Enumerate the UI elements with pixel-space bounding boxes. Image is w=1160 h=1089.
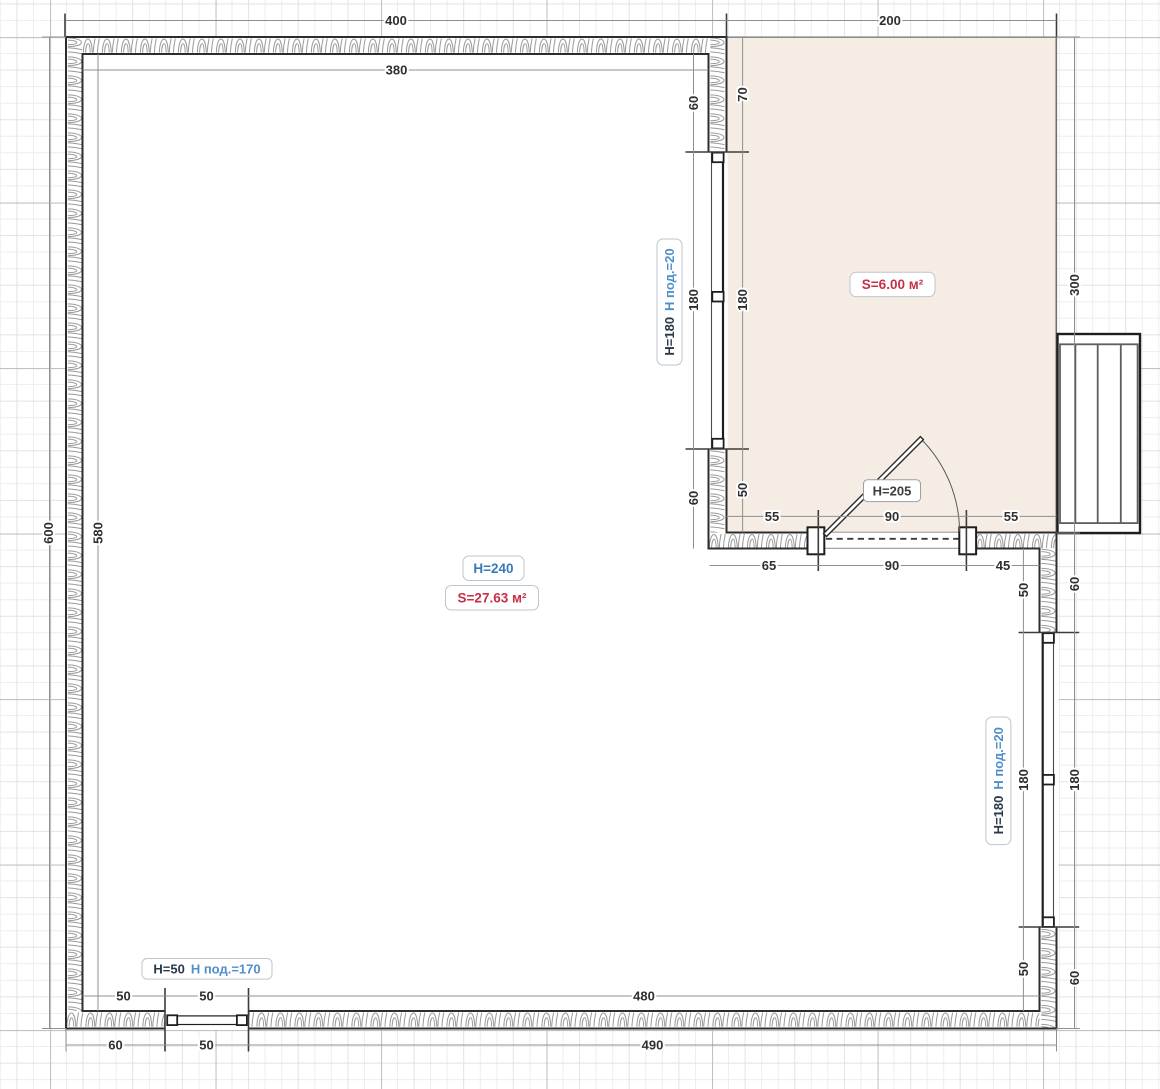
svg-text:50: 50 <box>1016 583 1031 597</box>
svg-text:300: 300 <box>1067 274 1082 296</box>
svg-text:580: 580 <box>91 522 106 544</box>
svg-text:S=27.63 м²: S=27.63 м² <box>458 591 527 606</box>
svg-text:H=180Н под.=20: H=180Н под.=20 <box>662 248 677 355</box>
svg-text:480: 480 <box>633 989 655 1004</box>
svg-text:380: 380 <box>386 63 408 78</box>
svg-text:50: 50 <box>1016 962 1031 976</box>
svg-text:45: 45 <box>996 558 1010 573</box>
svg-text:180: 180 <box>1067 769 1082 791</box>
svg-text:70: 70 <box>735 87 750 101</box>
svg-text:60: 60 <box>686 491 701 505</box>
svg-text:H=205: H=205 <box>873 483 912 498</box>
svg-text:90: 90 <box>885 558 899 573</box>
svg-text:50: 50 <box>199 1038 213 1053</box>
svg-text:H=240: H=240 <box>473 561 513 576</box>
svg-text:60: 60 <box>1067 971 1082 985</box>
svg-text:50: 50 <box>735 483 750 497</box>
svg-text:180: 180 <box>735 289 750 311</box>
svg-text:50: 50 <box>199 989 213 1004</box>
svg-text:180: 180 <box>1016 769 1031 791</box>
svg-text:600: 600 <box>41 522 56 544</box>
svg-text:H=50Н под.=170: H=50Н под.=170 <box>153 962 260 977</box>
svg-text:60: 60 <box>108 1038 122 1053</box>
svg-text:490: 490 <box>642 1038 664 1053</box>
svg-text:200: 200 <box>879 13 901 28</box>
svg-text:55: 55 <box>1004 509 1018 524</box>
svg-text:65: 65 <box>762 558 776 573</box>
svg-text:S=6.00 м²: S=6.00 м² <box>862 277 924 292</box>
svg-text:90: 90 <box>885 509 899 524</box>
svg-text:H=180Н под.=20: H=180Н под.=20 <box>991 727 1006 834</box>
svg-text:180: 180 <box>686 289 701 311</box>
svg-text:55: 55 <box>765 509 779 524</box>
svg-text:400: 400 <box>385 13 407 28</box>
svg-text:60: 60 <box>1067 577 1082 591</box>
svg-text:50: 50 <box>116 989 130 1004</box>
svg-text:60: 60 <box>686 96 701 110</box>
